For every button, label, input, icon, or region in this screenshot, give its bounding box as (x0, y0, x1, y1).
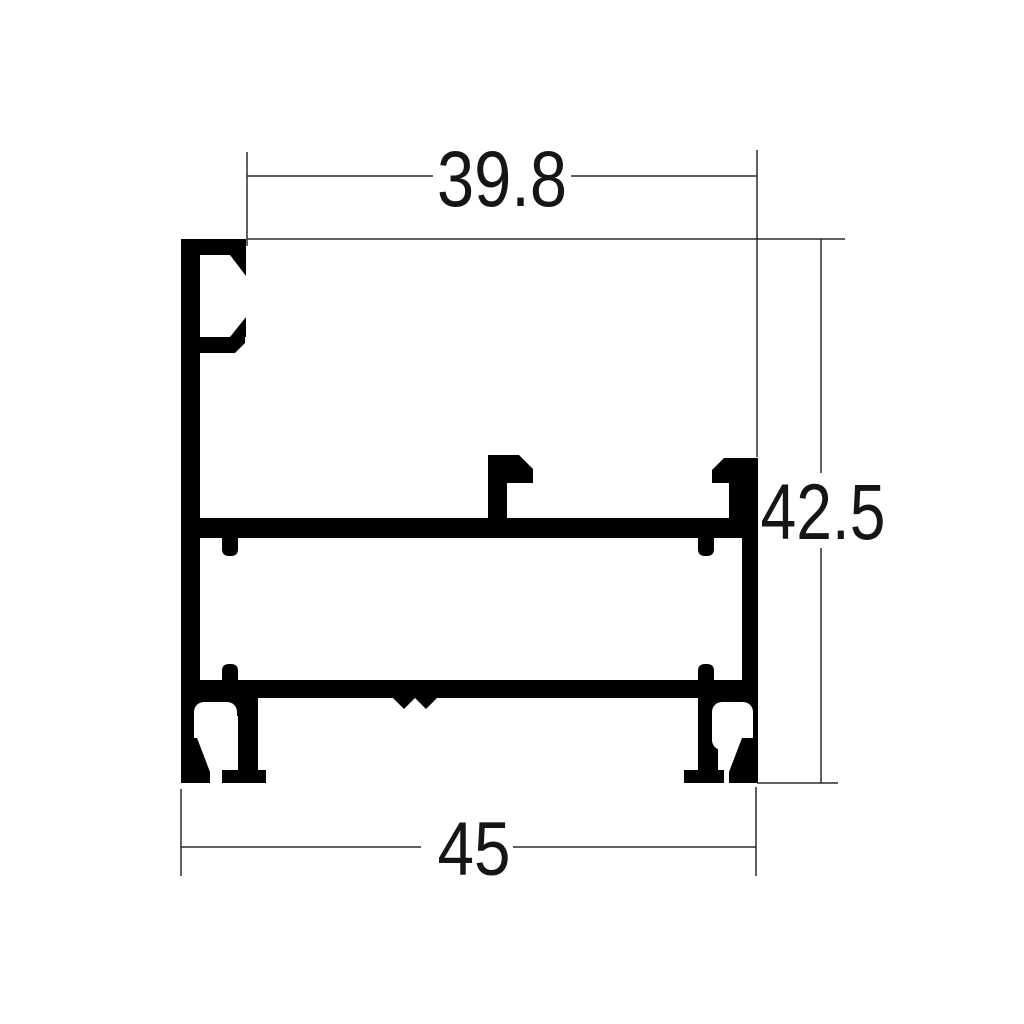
screw-ports (194, 702, 753, 750)
center-hook-rib (488, 455, 533, 520)
left-lower-boss (222, 664, 238, 680)
drawing-page: 39.8 42.5 45 (0, 0, 1024, 1024)
glazing-channel-bottom-flange (181, 337, 245, 353)
left-screw-port (194, 702, 237, 750)
top-flange (181, 239, 246, 255)
dim-top-width-label: 39.8 (437, 134, 567, 223)
profile-cross-section (181, 239, 758, 783)
dim-bottom-width-label: 45 (438, 807, 511, 892)
extrusion-profile-drawing: 39.8 42.5 45 (0, 0, 1024, 1024)
left-upper-boss (222, 538, 238, 556)
left-foot-leg (238, 698, 258, 772)
glazing-channel-upper-lip (230, 255, 246, 276)
middle-web (200, 518, 758, 538)
glazing-channel-lower-lip (230, 317, 246, 337)
left-foot-pad (222, 770, 266, 783)
dim-right-height-label: 42.5 (761, 467, 886, 556)
lower-web (200, 680, 758, 698)
serration-teeth (393, 698, 437, 709)
right-lower-boss (698, 664, 714, 680)
right-upper-boss (698, 538, 714, 556)
right-foot-pad (684, 770, 724, 783)
wall-flares (181, 738, 758, 783)
